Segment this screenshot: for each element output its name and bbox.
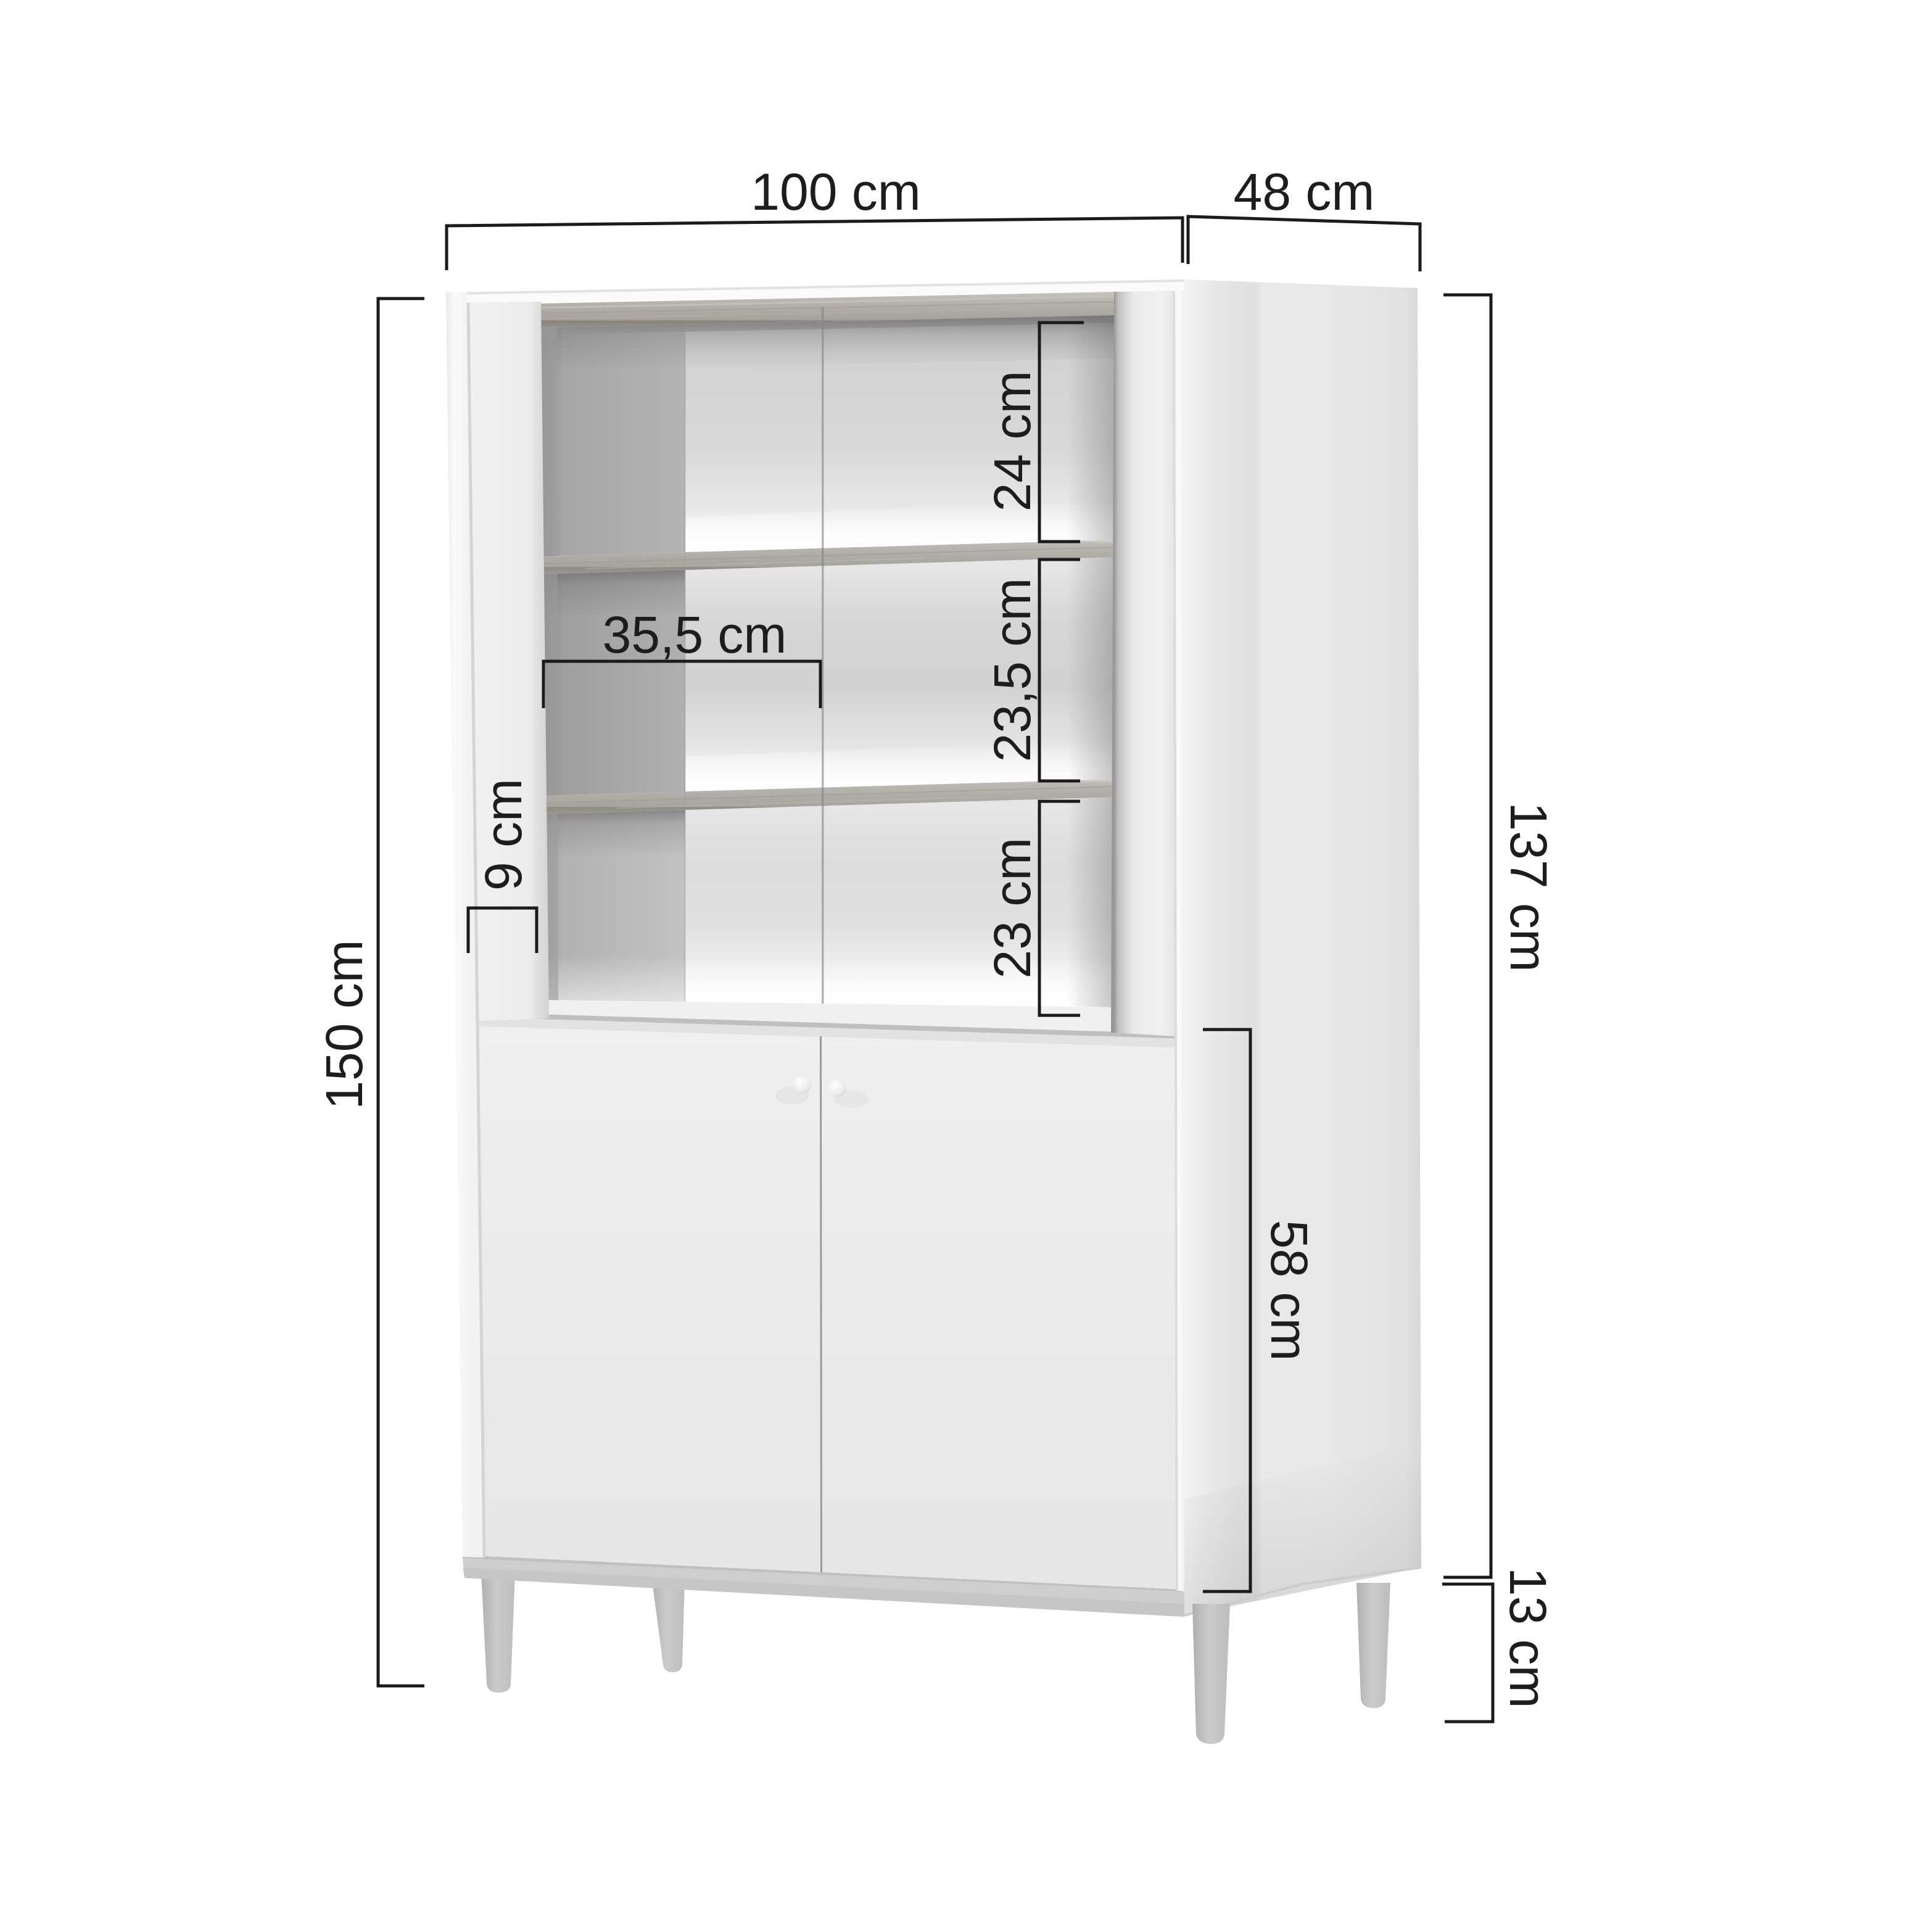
svg-text:23 cm: 23 cm [983, 838, 1041, 979]
svg-text:23,5 cm: 23,5 cm [983, 578, 1041, 762]
svg-text:9 cm: 9 cm [474, 778, 532, 891]
svg-text:150 cm: 150 cm [315, 939, 373, 1109]
svg-text:58 cm: 58 cm [1260, 1220, 1318, 1361]
svg-text:48 cm: 48 cm [1234, 163, 1375, 221]
svg-text:35,5 cm: 35,5 cm [603, 606, 787, 664]
svg-text:100 cm: 100 cm [751, 163, 920, 221]
svg-text:24 cm: 24 cm [983, 371, 1041, 512]
svg-text:13 cm: 13 cm [1499, 1567, 1557, 1709]
svg-text:137 cm: 137 cm [1500, 802, 1558, 972]
